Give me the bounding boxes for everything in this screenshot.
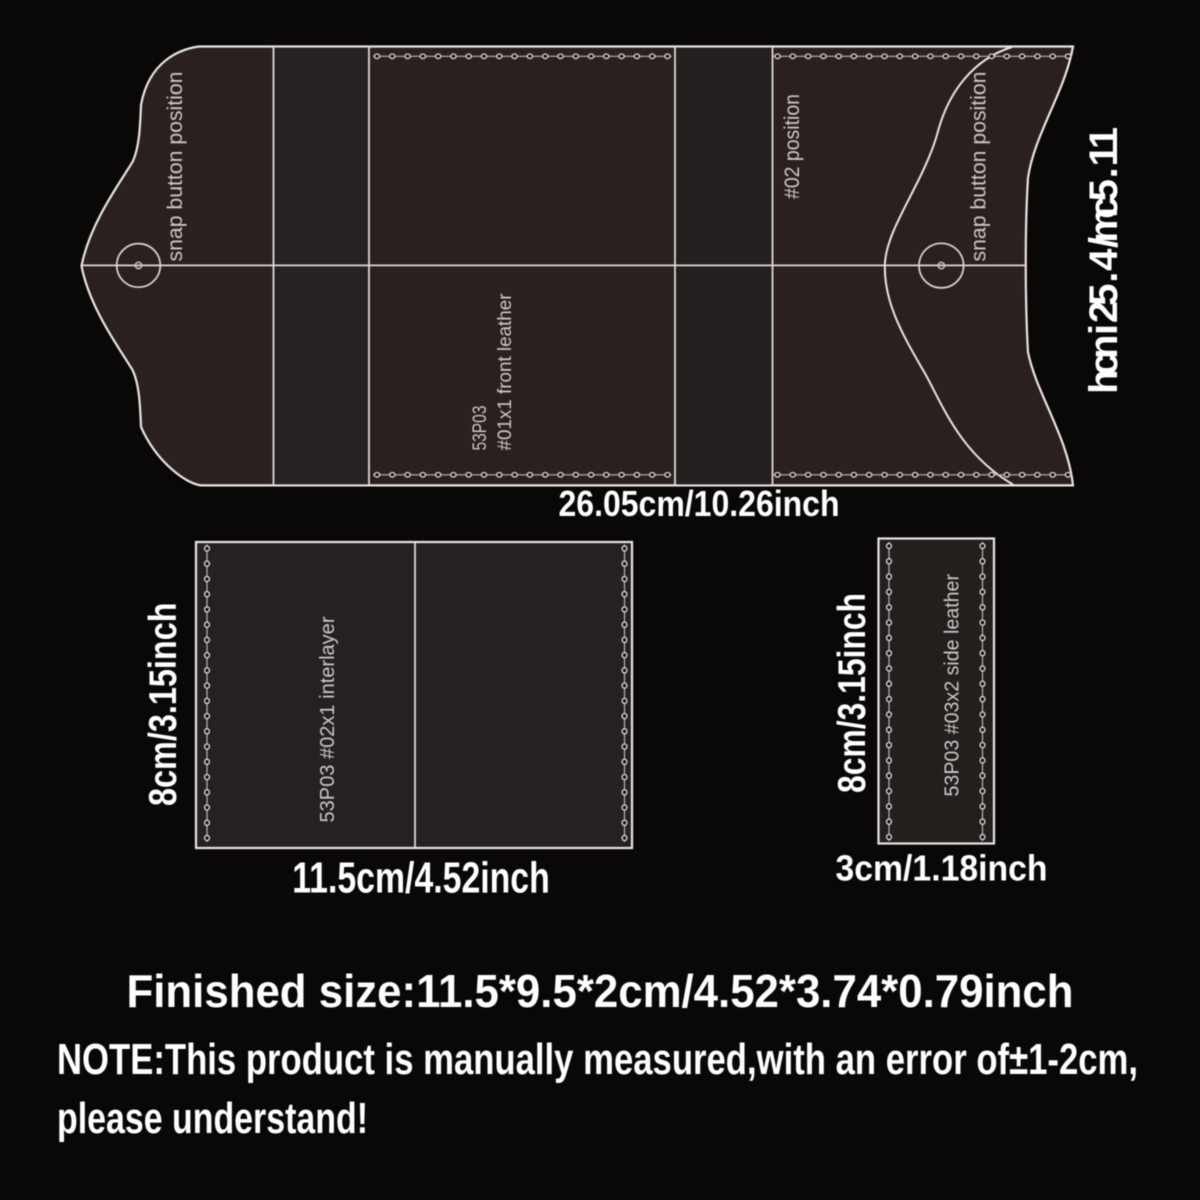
svg-text:i: i: [1082, 324, 1126, 335]
svg-text:.: .: [1082, 167, 1126, 178]
svg-text:#01x1 front leather: #01x1 front leather: [495, 293, 516, 451]
svg-text:3cm/1.18inch: 3cm/1.18inch: [836, 848, 1048, 889]
svg-text:8cm/3.15inch: 8cm/3.15inch: [831, 593, 874, 793]
svg-text:please understand!: please understand!: [57, 1094, 368, 1143]
svg-text:/: /: [1082, 237, 1126, 248]
svg-text:#02 position: #02 position: [781, 94, 804, 199]
svg-text:53P03 #02x1 interlayer: 53P03 #02x1 interlayer: [317, 616, 339, 822]
svg-text:.: .: [1082, 272, 1126, 283]
svg-text:Finished size:11.5*9.5*2cm/4.5: Finished size:11.5*9.5*2cm/4.52*3.74*0.7…: [127, 965, 1074, 1017]
svg-text:8cm/3.15inch: 8cm/3.15inch: [142, 603, 185, 807]
svg-text:h: h: [1082, 369, 1126, 393]
svg-text:53P03 #03x2 side leather: 53P03 #03x2 side leather: [942, 574, 964, 797]
svg-text:53P03: 53P03: [470, 406, 491, 451]
svg-text:2: 2: [1082, 301, 1126, 323]
svg-text:snap button position: snap button position: [164, 72, 187, 262]
svg-text:11.5cm/4.52inch: 11.5cm/4.52inch: [292, 854, 550, 903]
svg-text:4: 4: [1082, 248, 1126, 271]
svg-text:snap button position: snap button position: [968, 72, 991, 262]
svg-text:26.05cm/10.26inch: 26.05cm/10.26inch: [559, 483, 840, 524]
svg-text:NOTE:This product is manually: NOTE:This product is manually measured,w…: [57, 1035, 1138, 1084]
svg-text:1: 1: [1082, 144, 1126, 166]
